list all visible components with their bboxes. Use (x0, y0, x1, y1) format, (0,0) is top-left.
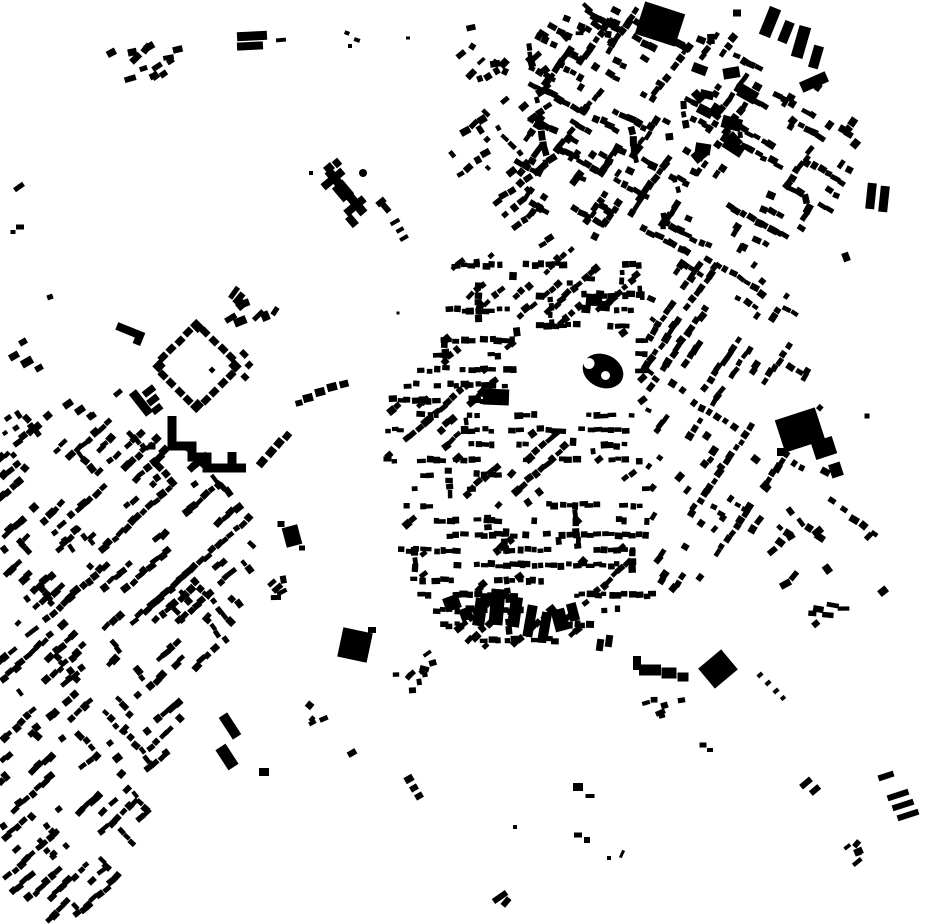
building (502, 338, 511, 344)
building (596, 290, 605, 298)
building (619, 277, 624, 284)
building (440, 576, 449, 582)
building (607, 856, 611, 860)
building (494, 518, 502, 524)
building (513, 327, 521, 337)
building (574, 543, 581, 549)
building (572, 509, 578, 518)
building (505, 638, 510, 643)
building (573, 517, 579, 526)
building (467, 413, 472, 418)
building (425, 504, 433, 508)
building (549, 303, 555, 311)
building (434, 549, 440, 555)
building (445, 624, 452, 630)
building (662, 668, 677, 679)
building (551, 638, 559, 644)
building (584, 837, 590, 843)
building (608, 413, 617, 418)
building (441, 341, 448, 348)
building (474, 562, 480, 567)
building (544, 547, 552, 552)
building (573, 783, 583, 791)
building (502, 384, 508, 389)
building (639, 665, 661, 676)
building (648, 591, 656, 597)
building (637, 504, 643, 508)
building (468, 441, 474, 446)
building (564, 457, 572, 463)
building (237, 31, 267, 42)
building (452, 517, 459, 524)
building (621, 323, 630, 328)
building (642, 351, 648, 357)
building (494, 472, 502, 478)
building (452, 532, 459, 538)
building (640, 291, 645, 300)
building (586, 412, 591, 417)
building (608, 532, 615, 536)
building (629, 261, 636, 267)
building (598, 300, 611, 311)
building (616, 516, 622, 522)
building (237, 41, 263, 50)
building (398, 546, 405, 552)
building (538, 578, 544, 585)
building (481, 533, 488, 539)
building (488, 367, 496, 372)
building (280, 575, 287, 584)
building (531, 517, 537, 524)
building (584, 503, 593, 508)
building (468, 338, 476, 343)
building (566, 561, 572, 566)
building (700, 743, 707, 748)
building (410, 577, 417, 581)
building (419, 578, 426, 585)
building (445, 478, 453, 484)
building (608, 457, 615, 462)
building (621, 456, 629, 462)
building (615, 323, 622, 328)
building (393, 672, 400, 677)
building (348, 44, 352, 48)
building (551, 562, 558, 567)
building (441, 547, 446, 554)
round-tower (359, 169, 367, 177)
building (509, 548, 515, 553)
building (299, 546, 305, 551)
building (578, 426, 585, 431)
building (488, 429, 494, 434)
building (602, 531, 609, 536)
building (473, 517, 481, 521)
building (621, 307, 627, 311)
building (613, 443, 620, 450)
building (437, 519, 446, 524)
building (460, 367, 466, 372)
building (636, 458, 643, 464)
building (694, 142, 711, 155)
building (426, 472, 434, 478)
building (531, 411, 537, 418)
building (474, 427, 479, 432)
building (404, 384, 412, 389)
building (630, 136, 637, 146)
building (431, 578, 440, 585)
building (530, 577, 536, 584)
building (16, 225, 24, 230)
building (474, 367, 481, 373)
building (636, 262, 642, 269)
building (586, 564, 595, 568)
building (466, 308, 474, 315)
building (599, 563, 606, 568)
building (573, 321, 581, 327)
building (447, 380, 453, 387)
building (607, 323, 613, 330)
building (633, 656, 641, 670)
building (629, 591, 637, 597)
building (615, 532, 623, 539)
building (432, 398, 441, 404)
building (488, 261, 495, 268)
building (537, 548, 543, 553)
building (581, 305, 591, 314)
building (522, 531, 529, 538)
building (11, 230, 16, 234)
building (615, 456, 621, 460)
building (531, 547, 536, 553)
building (425, 592, 431, 599)
building (631, 145, 639, 155)
building (523, 261, 530, 268)
building (473, 470, 479, 477)
building (460, 531, 469, 536)
building (484, 515, 491, 521)
building (442, 355, 447, 361)
building (475, 315, 482, 322)
building (707, 34, 715, 45)
building (600, 414, 609, 419)
building (660, 223, 665, 229)
building (526, 43, 532, 51)
building (538, 563, 543, 569)
building (576, 537, 581, 544)
building (497, 262, 502, 269)
building (412, 564, 419, 572)
building (545, 427, 552, 433)
building (503, 576, 509, 584)
building (397, 428, 404, 432)
building (389, 395, 398, 402)
building (629, 413, 635, 418)
building (601, 608, 607, 614)
building (473, 259, 480, 265)
building (609, 592, 615, 599)
building (494, 577, 503, 583)
building (636, 531, 642, 537)
building (427, 456, 434, 463)
building (508, 428, 516, 434)
building (404, 503, 410, 509)
building (495, 637, 501, 643)
building (615, 605, 620, 612)
building (481, 308, 489, 314)
building (538, 130, 546, 141)
building (434, 383, 441, 388)
building (614, 427, 621, 432)
building (433, 608, 441, 614)
building (607, 442, 613, 448)
figure-ground-map (0, 0, 930, 924)
building (651, 697, 658, 703)
pond-island (584, 358, 595, 369)
building (608, 427, 614, 433)
building (474, 457, 481, 463)
building (514, 412, 523, 419)
building (337, 627, 373, 663)
building (628, 308, 634, 314)
building (490, 60, 501, 68)
building (600, 546, 607, 553)
building (532, 563, 538, 569)
building (445, 306, 453, 312)
building (581, 531, 588, 537)
building (555, 537, 562, 545)
building (493, 337, 502, 344)
building (513, 825, 517, 829)
building (822, 612, 834, 619)
building (587, 533, 594, 538)
building (392, 459, 398, 464)
building (680, 101, 686, 109)
building (483, 389, 510, 406)
building (576, 31, 584, 35)
building (593, 501, 600, 507)
building (505, 626, 512, 635)
building (532, 262, 539, 269)
building (593, 412, 600, 419)
building (573, 456, 581, 463)
building (622, 261, 629, 268)
building (543, 531, 551, 537)
building (572, 502, 578, 510)
building (149, 443, 156, 450)
building (489, 442, 494, 449)
building (417, 368, 425, 373)
building (574, 833, 582, 838)
building (497, 306, 503, 311)
building (614, 561, 620, 566)
building (548, 312, 553, 318)
building (484, 524, 492, 530)
building (630, 503, 636, 509)
building (531, 638, 538, 642)
building (425, 547, 432, 551)
building (567, 280, 573, 285)
building (452, 548, 461, 554)
building (614, 307, 619, 313)
building (403, 397, 410, 403)
building (516, 442, 522, 448)
building (467, 592, 473, 598)
building (574, 594, 579, 598)
building (474, 413, 480, 418)
building (437, 458, 446, 463)
building (368, 627, 376, 633)
building (601, 427, 609, 432)
building (581, 291, 587, 298)
building (557, 563, 564, 570)
building (642, 532, 649, 539)
building (446, 534, 453, 539)
building (838, 606, 850, 610)
building (445, 549, 453, 553)
building (516, 427, 524, 432)
building (608, 563, 615, 569)
building (628, 533, 635, 538)
building (420, 473, 426, 478)
building (406, 549, 412, 554)
building (445, 468, 452, 474)
building (406, 37, 410, 40)
building (489, 309, 495, 313)
building (509, 272, 517, 280)
building (495, 564, 503, 568)
building (461, 426, 469, 434)
building (481, 563, 488, 567)
building (518, 546, 524, 553)
building (413, 380, 420, 386)
building (678, 673, 689, 682)
building (449, 577, 454, 583)
map-canvas (0, 0, 930, 924)
building (547, 297, 552, 302)
building (560, 502, 567, 508)
building (446, 484, 454, 490)
pond-island (601, 371, 610, 380)
building (411, 547, 418, 556)
building (434, 366, 441, 373)
building (621, 591, 628, 597)
building (587, 590, 596, 597)
building (505, 307, 510, 312)
building (454, 383, 459, 389)
building (628, 565, 636, 573)
building (440, 607, 446, 612)
building (509, 561, 518, 567)
building (707, 748, 713, 752)
building (593, 547, 600, 553)
building (559, 261, 567, 268)
building (509, 578, 515, 583)
building (777, 448, 787, 456)
building (622, 428, 630, 434)
building (475, 299, 482, 305)
building (487, 560, 495, 567)
building (865, 414, 870, 419)
building (442, 365, 450, 371)
building (505, 594, 511, 603)
building (416, 678, 422, 685)
building (475, 292, 483, 299)
building (522, 442, 529, 447)
building (629, 549, 636, 556)
building (453, 562, 461, 569)
building (549, 319, 555, 327)
building (475, 282, 481, 290)
building (510, 366, 517, 373)
building (550, 503, 558, 510)
building (630, 558, 637, 565)
building (417, 459, 426, 464)
building (538, 120, 544, 130)
building (452, 339, 459, 344)
building (494, 353, 501, 360)
building (309, 171, 313, 175)
building (397, 312, 400, 315)
building (520, 562, 525, 568)
building (619, 503, 628, 508)
building (417, 592, 425, 597)
building (590, 448, 595, 454)
building (536, 322, 544, 328)
building (487, 352, 494, 357)
building (622, 442, 628, 447)
building (593, 531, 601, 536)
building (644, 518, 649, 525)
building (579, 592, 585, 597)
building (448, 490, 453, 499)
building (412, 486, 418, 491)
building (259, 768, 269, 776)
building (620, 270, 625, 275)
building (503, 528, 510, 536)
building (482, 426, 488, 431)
building (494, 531, 502, 537)
building (475, 306, 481, 314)
building (524, 546, 531, 552)
building (459, 590, 467, 597)
building (278, 521, 285, 527)
building (636, 591, 644, 598)
building (665, 133, 673, 141)
building (427, 369, 433, 374)
building (586, 794, 595, 798)
building (572, 528, 579, 534)
building (475, 381, 481, 386)
building (614, 592, 621, 599)
building (733, 10, 741, 17)
building (605, 31, 612, 39)
building (385, 429, 391, 434)
building (621, 517, 626, 524)
building (409, 687, 416, 693)
building (626, 290, 635, 297)
building (416, 411, 425, 417)
building (586, 621, 594, 628)
building (501, 538, 508, 544)
building (480, 336, 488, 343)
building (523, 413, 531, 417)
building (454, 305, 461, 312)
building (481, 442, 490, 447)
building (538, 260, 544, 267)
building (601, 592, 606, 597)
building (537, 425, 545, 431)
building (601, 441, 609, 448)
